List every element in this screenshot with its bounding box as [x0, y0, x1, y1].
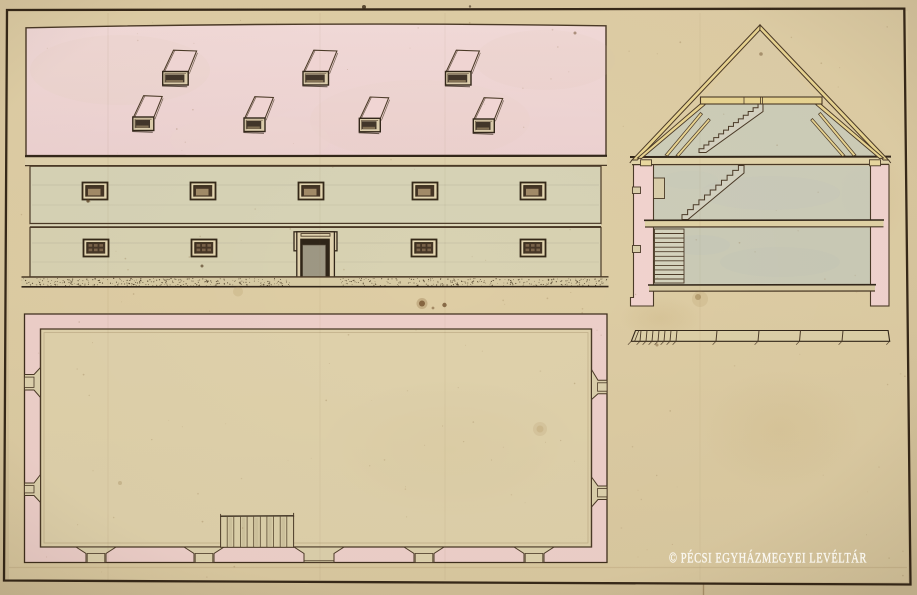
- svg-text:© PÉCSI EGYHÁZMEGYEI LEVÉLTÁR: © PÉCSI EGYHÁZMEGYEI LEVÉLTÁR: [669, 550, 867, 567]
